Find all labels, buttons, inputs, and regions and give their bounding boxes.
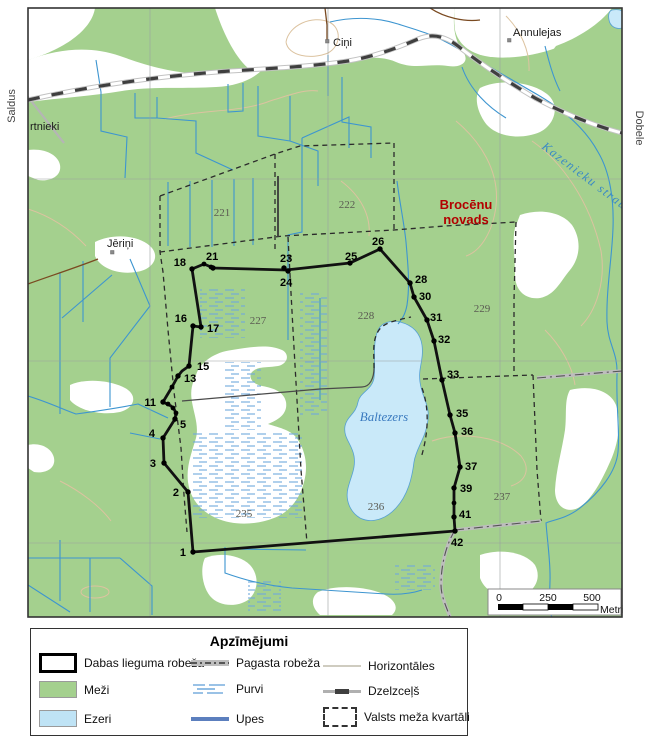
map-page: 1 2 3 4 5 11 13 15 16 17 18 21 23 24 25 … — [0, 0, 650, 745]
forest-swatch — [39, 681, 77, 698]
quarter-label-235: 235 — [236, 508, 253, 520]
place-label-jerini: Jēriņi — [107, 238, 133, 250]
scale-unit: Metri — [600, 604, 623, 616]
legend-label-kvartali: Valsts meža kvartāli — [364, 710, 470, 724]
marsh-swatch — [191, 681, 229, 697]
quarter-label-229: 229 — [474, 303, 491, 315]
map-canvas: 1 2 3 4 5 11 13 15 16 17 18 21 23 24 25 … — [0, 0, 650, 625]
margin-label-dobele: Dobele — [633, 111, 645, 146]
quarter-label-221: 221 — [214, 207, 231, 219]
legend-item-ezeri: Ezeri — [39, 710, 111, 727]
margin-label-saldus: Saldus — [6, 89, 18, 123]
quarter-label-228: 228 — [358, 310, 375, 322]
legend-item-purvi: Purvi — [191, 681, 263, 697]
legend-label-dzelzcels: Dzelzceļš — [368, 684, 419, 698]
legend-label-pagasta: Pagasta robeža — [236, 656, 320, 670]
legend-box: Apzīmējumi Dabas lieguma robeža Meži Eze… — [30, 628, 468, 736]
point-label-17: 17 — [207, 323, 219, 335]
legend-item-upes: Upes — [191, 712, 264, 726]
legend-item-horizontales: Horizontāles — [323, 659, 435, 673]
point-label-2: 2 — [173, 487, 179, 499]
legend-label-mezi: Meži — [84, 683, 109, 697]
point-label-33: 33 — [447, 369, 459, 381]
point-label-16: 16 — [175, 313, 187, 325]
point-label-13: 13 — [184, 373, 196, 385]
scale-tick-0: 0 — [496, 592, 502, 604]
forest-quarter-swatch — [323, 707, 357, 727]
point-label-5: 5 — [180, 419, 186, 431]
district-label-line1: Brocēnu — [440, 197, 493, 212]
quarter-label-237: 237 — [494, 491, 511, 503]
point-label-23: 23 — [280, 253, 292, 265]
quarter-label-236: 236 — [368, 501, 385, 513]
pagasta-boundary-swatch — [191, 660, 229, 666]
quarter-label-227: 227 — [250, 315, 267, 327]
point-label-1: 1 — [180, 547, 186, 559]
point-label-11: 11 — [144, 397, 156, 409]
legend-label-dabas: Dabas lieguma robeža — [84, 656, 204, 670]
point-label-24: 24 — [280, 277, 293, 289]
legend-item-pagasta: Pagasta robeža — [191, 656, 320, 670]
scale-bar-segments — [498, 604, 598, 610]
place-label-cini: Ciņi — [333, 37, 352, 49]
point-label-35: 35 — [456, 408, 468, 420]
point-label-28: 28 — [415, 274, 427, 286]
legend-label-purvi: Purvi — [236, 682, 263, 696]
point-label-26: 26 — [372, 236, 384, 248]
point-label-4: 4 — [149, 428, 156, 440]
legend-item-dabas: Dabas lieguma robeža — [39, 653, 204, 673]
scale-tick-500: 500 — [583, 592, 601, 604]
legend-label-upes: Upes — [236, 712, 264, 726]
legend-item-mezi: Meži — [39, 681, 109, 698]
scale-tick-250: 250 — [539, 592, 557, 604]
point-label-15: 15 — [197, 361, 209, 373]
legend-label-horizontales: Horizontāles — [368, 659, 435, 673]
point-label-31: 31 — [430, 312, 442, 324]
reserve-boundary-swatch — [39, 653, 77, 673]
point-label-37: 37 — [465, 461, 477, 473]
railway-swatch — [323, 690, 361, 693]
legend-title: Apzīmējumi — [31, 633, 467, 649]
settlement-marker — [508, 39, 512, 43]
point-label-30: 30 — [419, 291, 431, 303]
point-label-41: 41 — [459, 509, 471, 521]
point-label-21: 21 — [206, 251, 218, 263]
point-label-25: 25 — [345, 251, 357, 263]
point-label-18: 18 — [174, 257, 186, 269]
point-label-42: 42 — [451, 537, 463, 549]
legend-item-dzelzcels: Dzelzceļš — [323, 684, 419, 698]
district-label-line2: novads — [443, 212, 489, 227]
legend-item-kvartali: Valsts meža kvartāli — [323, 707, 470, 727]
legend-label-ezeri: Ezeri — [84, 712, 111, 726]
place-label-vartnieki: rtnieki — [30, 121, 59, 133]
scale-bar: 0 250 500 Metri — [488, 589, 623, 616]
river-swatch — [191, 717, 229, 721]
point-label-39: 39 — [460, 483, 472, 495]
quarter-label-222: 222 — [339, 199, 356, 211]
point-label-32: 32 — [438, 334, 450, 346]
lake-label: Baltezers — [360, 409, 408, 424]
contour-swatch — [323, 665, 361, 667]
settlement-marker — [326, 40, 330, 44]
point-label-36: 36 — [461, 426, 473, 438]
lake-swatch — [39, 710, 77, 727]
place-label-annulejas: Annulejas — [513, 27, 562, 39]
settlement-marker — [111, 251, 115, 255]
terrain-layer: 1 2 3 4 5 11 13 15 16 17 18 21 23 24 25 … — [28, 8, 639, 617]
point-label-3: 3 — [150, 458, 156, 470]
